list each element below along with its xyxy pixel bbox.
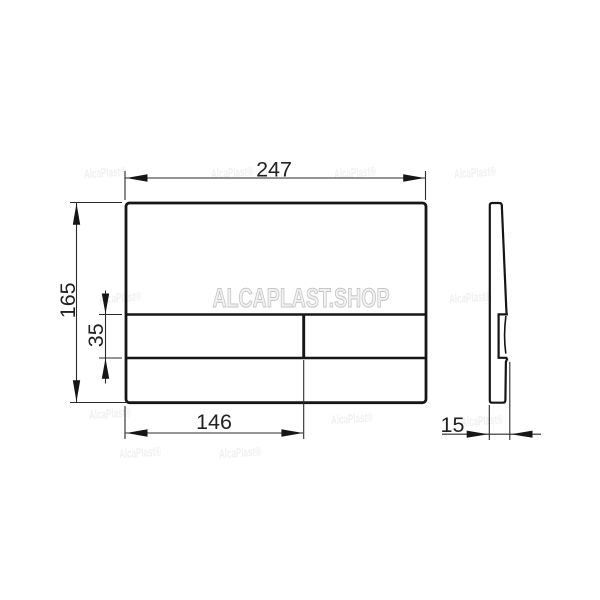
svg-text:AlcaPlast®: AlcaPlast® xyxy=(119,444,162,462)
svg-text:35: 35 xyxy=(84,323,108,347)
svg-text:15: 15 xyxy=(441,413,465,437)
svg-text:AlcaPlast®: AlcaPlast® xyxy=(219,444,262,462)
svg-text:AlcaPlast®: AlcaPlast® xyxy=(331,410,374,428)
svg-text:146: 146 xyxy=(196,410,232,434)
svg-text:AlcaPlast®: AlcaPlast® xyxy=(454,164,497,182)
svg-text:AlcaPlast®: AlcaPlast® xyxy=(211,164,254,182)
svg-text:AlcaPlast®: AlcaPlast® xyxy=(461,412,504,430)
svg-text:165: 165 xyxy=(56,282,80,318)
svg-text:AlcaPlast®: AlcaPlast® xyxy=(449,289,492,307)
svg-text:AlcaPlast®: AlcaPlast® xyxy=(84,164,127,182)
svg-text:AlcaPlast®: AlcaPlast® xyxy=(334,164,377,182)
svg-text:247: 247 xyxy=(256,157,292,181)
svg-text:ALCAPLAST.SHOP: ALCAPLAST.SHOP xyxy=(213,283,390,313)
